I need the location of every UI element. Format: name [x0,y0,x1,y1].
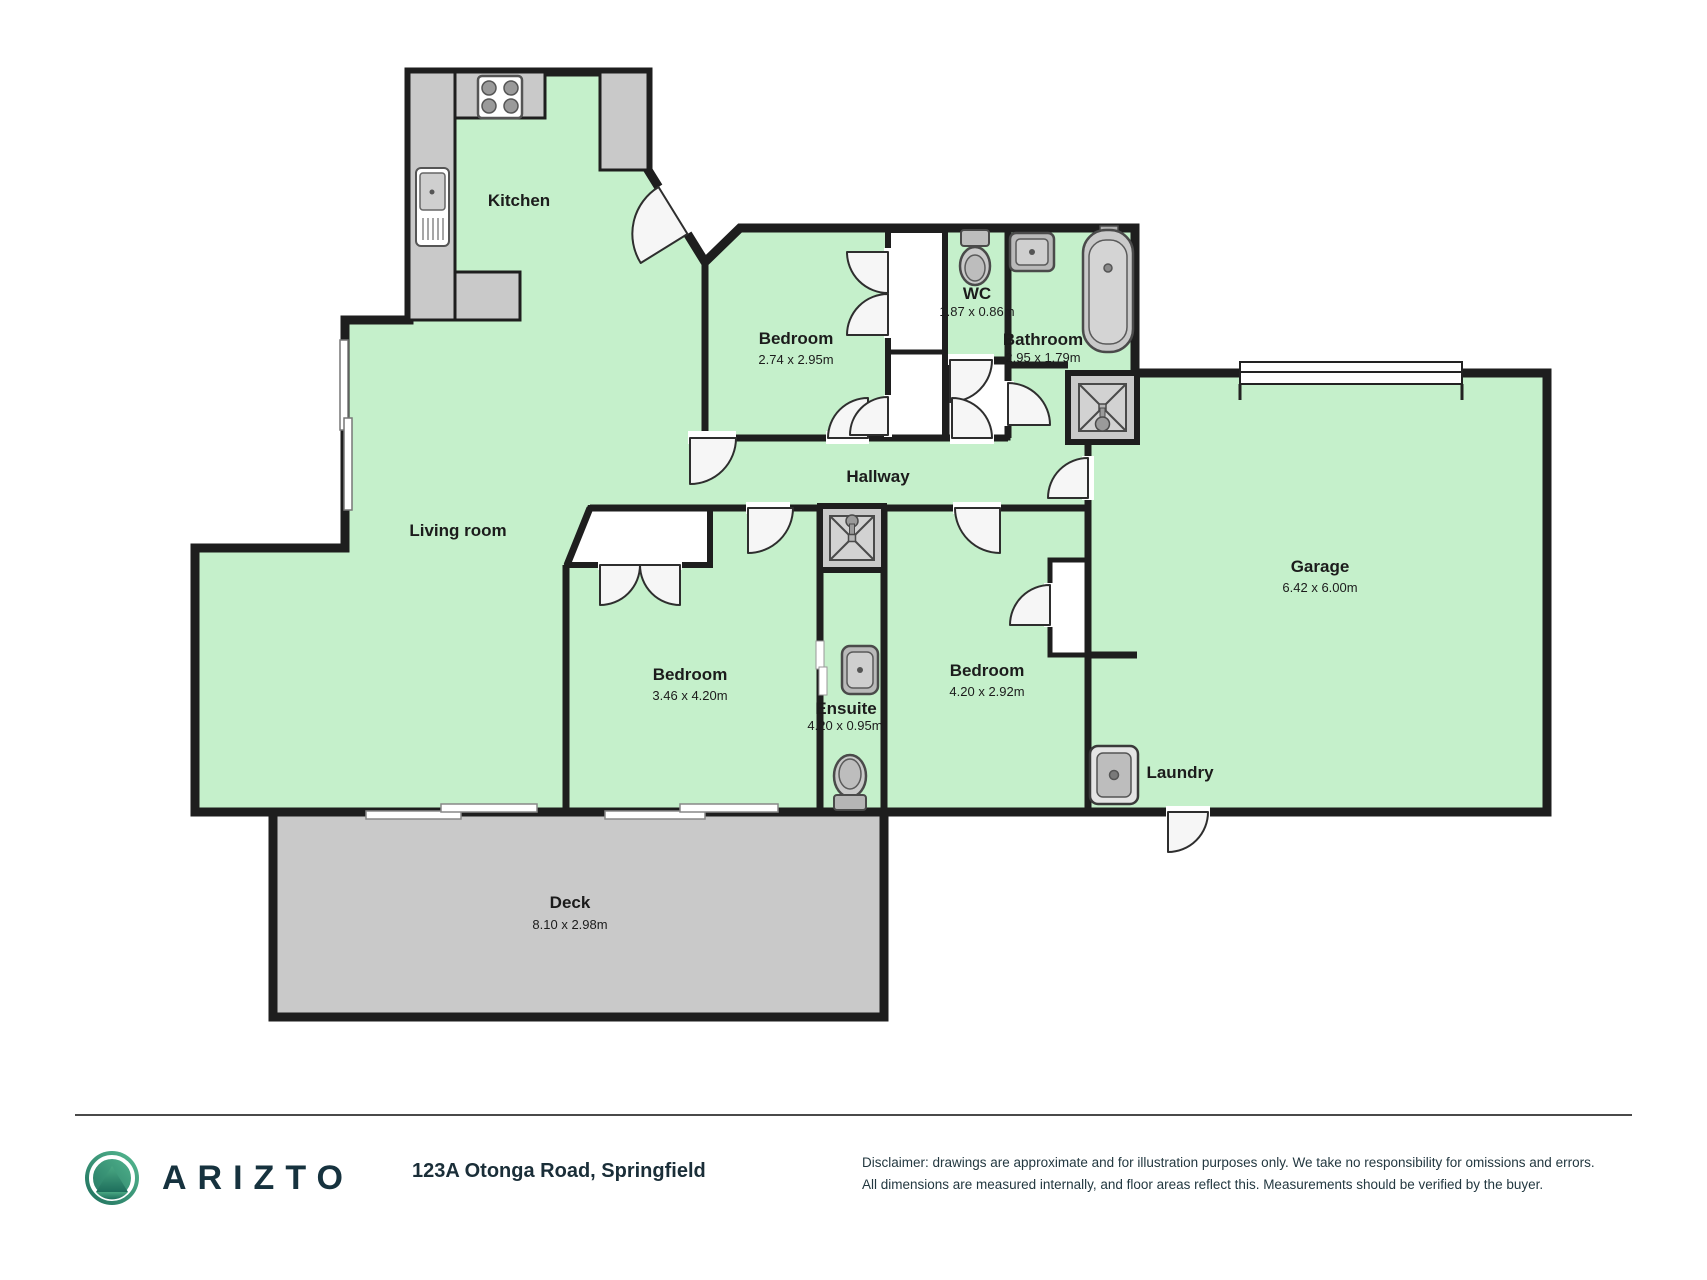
kitchen-sink-icon [416,168,449,246]
room-dims: 4.20 x 0.95m [807,718,882,733]
window [344,418,352,510]
closet-bedroom-mid [1050,560,1088,655]
deck-area [273,812,884,1017]
counter-bottom-leg [455,272,520,320]
door-arc-laundry-exterior [1168,812,1208,852]
bathtub-icon [1083,226,1133,352]
sliding-door-panel [441,804,537,812]
disclaimer-text: Disclaimer: drawings are approximate and… [862,1152,1662,1195]
garage-door-panel [1240,372,1462,384]
room-dims: 2.74 x 2.95m [758,352,833,367]
laundry-tub-icon [1090,746,1138,804]
room-label: Garage [1291,557,1350,576]
room-label: Bedroom [759,329,834,348]
room-dims: 8.10 x 2.98m [532,917,607,932]
wc-toilet-icon [960,230,990,285]
room-dims: 2.95 x 1.79m [1005,350,1080,365]
floorplan-page: Kitchen Living room Bedroom 2.74 x 2.95m… [0,0,1707,1280]
arizto-logo-icon [84,1150,140,1206]
room-dims: 3.46 x 4.20m [652,688,727,703]
property-address: 123A Otonga Road, Springfield [412,1160,706,1183]
garage-door-panel [1240,362,1462,372]
shower-icon [1068,373,1137,442]
ensuite-toilet-icon [834,755,866,810]
room-dims: 4.20 x 2.92m [949,684,1024,699]
bathroom-sink-icon [1010,233,1054,271]
room-label: Kitchen [488,191,550,210]
ensuite-pocket-door [819,667,827,695]
room-dims: 1.87 x 0.86m [939,304,1014,319]
room-label: Deck [550,893,591,912]
disclaimer-line-2: All dimensions are measured internally, … [862,1174,1662,1196]
room-label: WC [963,284,991,303]
closet-column [888,230,945,438]
room-label: Laundry [1146,763,1214,782]
floor-plan: Kitchen Living room Bedroom 2.74 x 2.95m… [0,0,1707,1280]
room-dims: 6.42 x 6.00m [1282,580,1357,595]
room-label: Living room [409,521,506,540]
room-label: Bedroom [653,665,728,684]
disclaimer-line-1: Disclaimer: drawings are approximate and… [862,1152,1662,1174]
footer-divider [75,1114,1632,1116]
ensuite-sink-icon [842,646,878,694]
counter-top-right-block [600,72,648,170]
brand-wordmark: ARIZTO [162,1159,354,1198]
ensuite-shower-icon [820,506,884,570]
window [340,340,348,430]
brand-logo: ARIZTO [84,1150,354,1206]
room-label: Bathroom [1003,330,1083,349]
stove-icon [478,76,522,118]
room-label: Bedroom [950,661,1025,680]
sliding-door-panel [680,804,778,812]
ensuite-pocket-door [816,641,824,669]
room-label: Hallway [846,467,910,486]
room-label: Ensuite [815,699,876,718]
